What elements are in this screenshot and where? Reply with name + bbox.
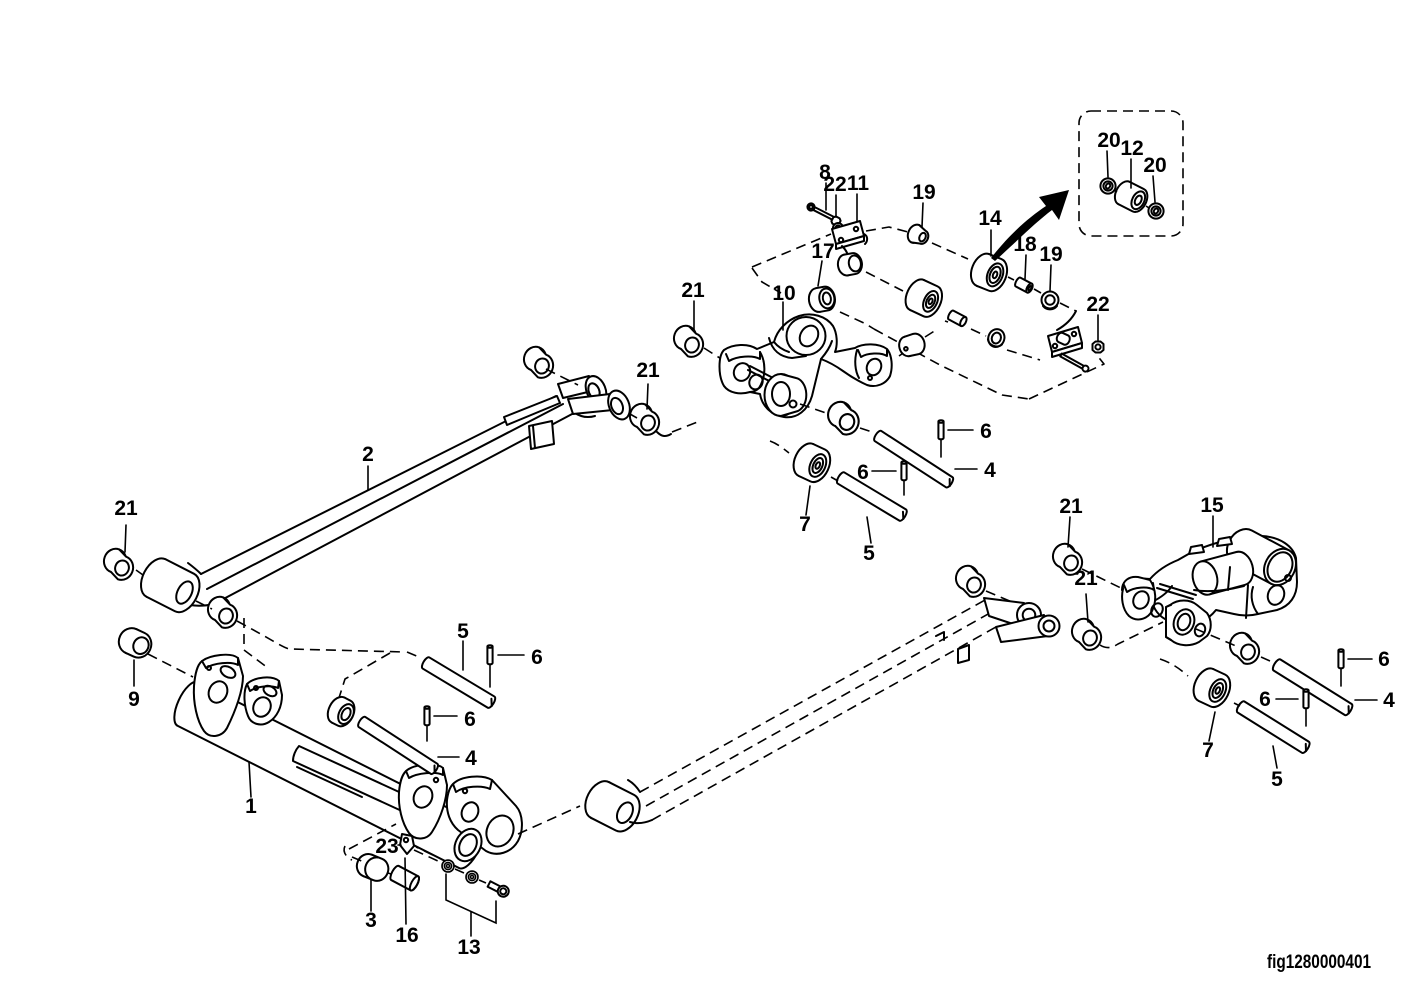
svg-text:3: 3 [365, 909, 377, 932]
svg-text:6: 6 [464, 708, 476, 731]
svg-text:16: 16 [395, 924, 418, 947]
svg-text:7: 7 [1202, 739, 1214, 762]
svg-text:4: 4 [984, 459, 996, 482]
svg-text:6: 6 [857, 461, 869, 484]
svg-text:7: 7 [799, 513, 811, 536]
svg-text:2: 2 [362, 443, 374, 466]
svg-text:4: 4 [1383, 689, 1395, 712]
svg-text:6: 6 [1259, 688, 1271, 711]
svg-text:5: 5 [1271, 768, 1283, 791]
svg-text:21: 21 [681, 279, 705, 302]
svg-text:5: 5 [863, 542, 875, 565]
svg-text:13: 13 [457, 936, 480, 959]
svg-text:6: 6 [1378, 648, 1390, 671]
svg-text:10: 10 [772, 282, 795, 305]
svg-text:9: 9 [128, 688, 140, 711]
svg-text:22: 22 [1086, 293, 1109, 316]
svg-text:22: 22 [823, 173, 846, 196]
svg-text:6: 6 [980, 420, 992, 443]
svg-text:15: 15 [1200, 494, 1224, 517]
svg-text:1: 1 [245, 795, 257, 818]
svg-text:19: 19 [1039, 243, 1062, 266]
svg-text:21: 21 [1059, 495, 1083, 518]
svg-text:fig1280000401: fig1280000401 [1267, 952, 1371, 973]
svg-text:21: 21 [114, 497, 138, 520]
svg-text:11: 11 [847, 172, 870, 195]
svg-text:20: 20 [1097, 129, 1120, 152]
svg-text:17: 17 [811, 240, 834, 263]
svg-text:19: 19 [912, 181, 935, 204]
svg-text:23: 23 [375, 835, 398, 858]
svg-text:20: 20 [1143, 154, 1166, 177]
svg-text:12: 12 [1120, 137, 1143, 160]
svg-text:6: 6 [531, 646, 543, 669]
svg-text:21: 21 [636, 359, 660, 382]
svg-text:14: 14 [978, 207, 1002, 230]
svg-text:5: 5 [457, 620, 469, 643]
svg-text:4: 4 [465, 747, 477, 770]
